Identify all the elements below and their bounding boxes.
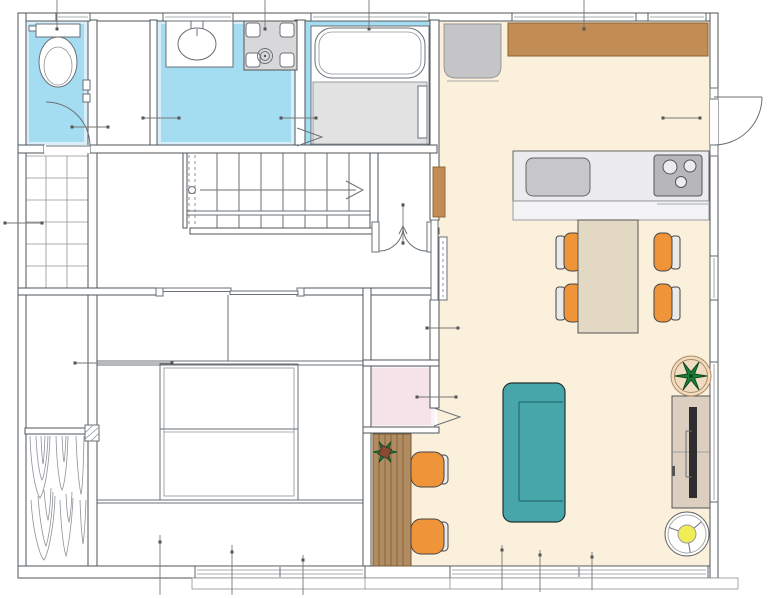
wall-stair-right <box>370 153 378 228</box>
potted-plant-large <box>671 356 711 396</box>
entrance-tile-grid <box>25 156 88 288</box>
bath-bench <box>418 86 427 138</box>
dining-chair <box>654 233 680 271</box>
stair-direction-arrow <box>200 181 363 199</box>
window-bottom-ldk <box>450 566 708 578</box>
track-stop-symbol <box>189 187 196 194</box>
toilet-paper-holder <box>83 80 90 90</box>
window-top-bathroom <box>311 13 429 21</box>
window-right-upper <box>710 256 718 300</box>
window-top-washroom <box>163 13 233 21</box>
floor-plan <box>0 0 768 598</box>
staircase <box>183 153 378 228</box>
pillar-hatched <box>85 425 99 441</box>
washroom <box>166 21 297 70</box>
tv <box>689 407 697 498</box>
wall-h-sanitary-b <box>90 145 437 153</box>
window-right-lower <box>710 362 718 502</box>
japanese-room-lines <box>97 295 363 503</box>
wash-basin <box>166 21 233 67</box>
dining-chair <box>654 284 680 322</box>
stool <box>411 519 448 554</box>
toilet-bowl <box>39 37 77 87</box>
dining-table <box>578 220 638 333</box>
pink-nook-floor <box>371 368 431 425</box>
wall-v-ldk-lower <box>430 300 439 408</box>
wall-h-hall-a <box>18 288 157 295</box>
floor-lamp <box>665 512 709 556</box>
kitchen-sink <box>526 158 590 196</box>
wall-h-sanitary-a <box>18 145 44 153</box>
wall-pink-bottom <box>363 427 439 433</box>
wall-counter-brown <box>508 23 708 56</box>
shower-floor <box>313 82 427 144</box>
refrigerator <box>444 24 501 81</box>
veranda-strip <box>192 578 738 589</box>
sofa <box>503 383 565 522</box>
wall-cabinet <box>433 167 445 217</box>
japanese-room-sliding-doors <box>156 288 304 296</box>
stool <box>411 452 448 487</box>
wall-h-stairs <box>190 228 372 234</box>
bathtub <box>315 28 425 78</box>
wall-pink-top <box>363 360 439 366</box>
window-bottom-japanese-room <box>195 566 365 578</box>
bathroom <box>297 28 427 146</box>
stove <box>654 155 702 196</box>
wood-deck-grain <box>30 436 86 560</box>
wall-deck-top <box>25 428 87 434</box>
floor-plan-drawing <box>0 0 768 598</box>
ldk-entry-swing-door <box>710 88 762 156</box>
tv-board <box>672 396 710 508</box>
window-top-kitchen-a <box>512 13 636 21</box>
wall-v-washroom <box>150 20 157 153</box>
washing-machine <box>244 21 297 70</box>
window-top-toilet <box>56 13 90 21</box>
kitchen-counter <box>513 151 709 220</box>
window-top-kitchen-b <box>648 13 706 21</box>
